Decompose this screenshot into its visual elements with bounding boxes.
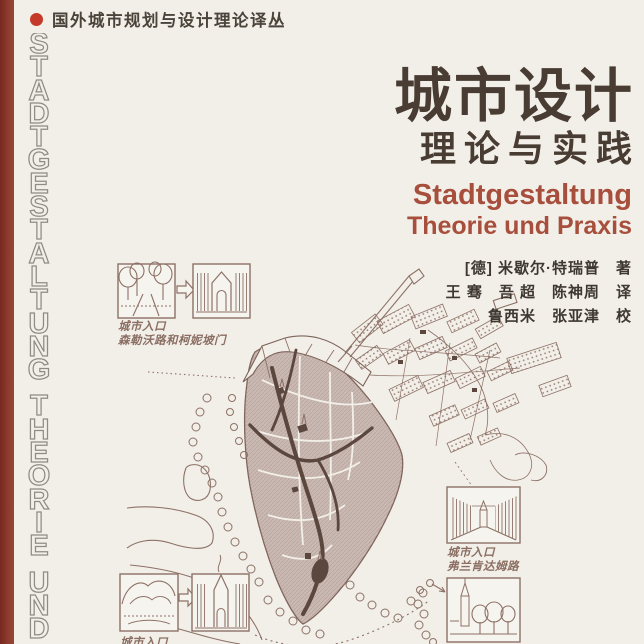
map-label-line: 城市入口 <box>120 637 168 644</box>
book-cover: STADTGESTALTUNGTHEORIEUNDPRAXIS 国外城市规划与设… <box>0 0 644 644</box>
vignette-right-street <box>447 487 520 543</box>
book-subtitle-german: Theorie und Praxis <box>407 214 632 239</box>
proofreaders-line: 鲁西米 张亚津 校 <box>446 305 632 329</box>
author-line: [德] 米歇尔·特瑞普 著 <box>446 257 632 281</box>
vignette-top-left <box>118 262 250 318</box>
map-label-line: 弗兰肯达姆路 <box>447 561 519 575</box>
book-title-german: Stadtgestaltung <box>413 181 632 210</box>
map-label-line: 森勒沃路和柯妮坡门 <box>118 335 226 349</box>
map-label-right: 城市入口 弗兰肯达姆路 <box>447 547 519 574</box>
old-town-core <box>243 336 403 624</box>
map-label-bottom-left: 城市入口 <box>120 637 168 644</box>
map-label-top-left: 城市入口 森勒沃路和柯妮坡门 <box>118 321 226 348</box>
book-title-chinese: 城市设计 <box>394 68 634 126</box>
credits-block: [德] 米歇尔·特瑞普 著 王 骞 吾 超 陈神周 译 鲁西米 张亚津 校 <box>446 257 632 329</box>
vignette-right-church <box>432 578 520 642</box>
map-label-line: 城市入口 <box>118 321 226 335</box>
map-label-line: 城市入口 <box>447 547 519 561</box>
translators-line: 王 骞 吾 超 陈神周 译 <box>446 281 632 305</box>
book-subtitle-chinese: 理论与实践 <box>420 131 640 167</box>
